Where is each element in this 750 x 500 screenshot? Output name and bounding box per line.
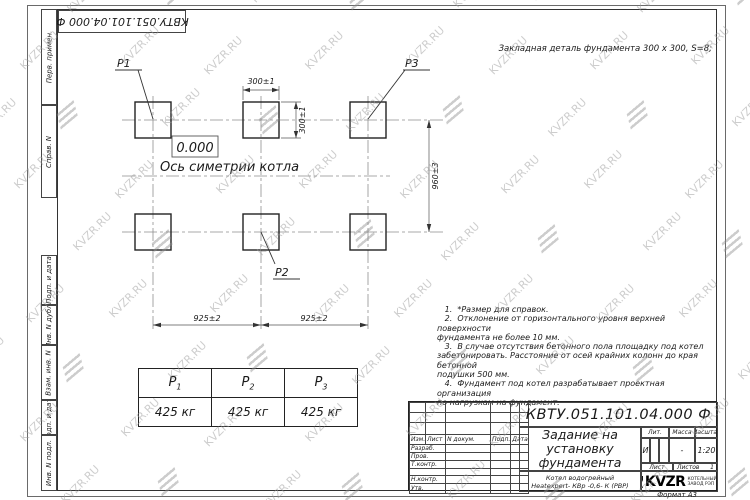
sign-row-prov: Пров.	[410, 453, 446, 461]
mass-header: Масса	[669, 427, 695, 438]
technical-notes: 1. *Размер для справок. 2. Отклонение от…	[437, 305, 715, 407]
kvzr-logo-text: KVZR	[645, 474, 686, 490]
kvzr-stripes-icon	[642, 476, 643, 488]
sheets-cell: Листов 1	[673, 463, 718, 471]
dimension-lines	[153, 86, 429, 325]
pad-label-p3: P3	[405, 57, 419, 70]
margin-label-inv-n-podl: Инв. N подл.	[41, 435, 57, 491]
dim-row-spacing: 960±3	[431, 162, 440, 189]
load-value-p2: 425 кг	[212, 398, 285, 427]
loads-value-row: 425 кг 425 кг 425 кг	[139, 398, 358, 427]
load-header-p1: P1	[139, 369, 212, 398]
margin-label-podp-data-2: Подп. и дата	[41, 400, 57, 435]
watermark-text: KVZR.RU	[736, 339, 750, 383]
margin-label-vzam-inv-n: Взам. инв. N	[41, 345, 57, 400]
dim-top-width: 300±1	[247, 77, 274, 86]
margin-label-inv-n-dubl: Инв. N дубл.	[41, 305, 57, 345]
kvzr-stripes-watermark-icon	[531, 0, 552, 1]
load-header-p3: P3	[285, 369, 358, 398]
sign-row-nkontr: Н.контр.	[410, 476, 446, 484]
loads-table: P1 P2 P3 425 кг 425 кг 425 кг	[138, 368, 358, 427]
loads-header-row: P1 P2 P3	[139, 369, 358, 398]
dim-col-spacing-right: 925±2	[300, 314, 327, 323]
boiler-axis-label: Ось симетрии котла	[160, 160, 299, 175]
load-header-p2: P2	[212, 369, 285, 398]
drawing-sheet: КВТУ.051.101.04.000 Ф Перв. примен. Спра…	[0, 0, 750, 500]
margin-label-podp-data-1: Подп. и дата	[41, 255, 57, 305]
sheet-label: Лист	[641, 463, 673, 471]
lit-cell-2	[650, 438, 659, 463]
load-value-p3: 425 кг	[285, 398, 358, 427]
lit-cell-3	[659, 438, 669, 463]
embedded-detail-note: Закладная деталь фундамента 300 x 300, S…	[490, 44, 712, 54]
dim-col-spacing-left: 925±2	[193, 314, 220, 323]
format-label: Формат А3	[637, 491, 717, 499]
kvzr-stripes-watermark-icon	[733, 0, 750, 6]
rotated-doc-number: КВТУ.051.101.04.000 Ф	[56, 15, 189, 28]
lit-header: Лит.	[641, 427, 669, 438]
load-value-p1: 425 кг	[139, 398, 212, 427]
company-name: КОТЕЛЬНЫЙ ЗАВОД РЭП	[687, 477, 717, 487]
dim-side-height: 300±1	[298, 106, 307, 133]
scale-value: 1:20	[695, 438, 718, 463]
margin-label-sprav-n: Справ. N	[41, 105, 57, 198]
dimension-arrows	[153, 88, 431, 327]
rotated-doc-number-box: КВТУ.051.101.04.000 Ф	[58, 10, 186, 33]
change-table: Изм. Лист N докум. Подп. Дата Разраб. Пр…	[409, 402, 529, 494]
scale-header: Масштаб	[695, 427, 718, 438]
watermark-text: KVZR.RU	[730, 86, 750, 130]
sheets-value: 1	[710, 464, 714, 471]
change-table-header: Изм. Лист N докум. Подп. Дата	[410, 435, 529, 445]
watermark-text: KVZR.RU	[0, 334, 7, 378]
foundation-plan: P1 P3 P2 300±1 300±1 960±3 925±2 925±2 0…	[60, 40, 460, 340]
sign-row-razrab: Разраб.	[410, 445, 446, 453]
drawing-title: Задание на установку фундамента	[519, 427, 641, 471]
sign-row-utv: Утв.	[410, 484, 446, 494]
watermark-text: KVZR.RU	[0, 96, 19, 140]
mass-value: -	[669, 438, 695, 463]
product-name: Котел водогрейный Heatexpert- КВр -0,6- …	[519, 471, 641, 492]
pad-label-p2: P2	[275, 266, 289, 279]
kvzr-stripes-watermark-icon	[727, 465, 748, 496]
margin-label-perv-primen: Перв. примен.	[41, 9, 57, 105]
title-block: Изм. Лист N докум. Подп. Дата Разраб. Пр…	[408, 401, 717, 491]
lit-value: И	[641, 438, 650, 463]
sign-row-tkontr: Т.контр.	[410, 461, 446, 469]
doc-number: КВТУ.051.101.04.000 Ф	[519, 402, 718, 427]
pad-label-p1: P1	[117, 57, 131, 70]
elevation-mark: 0.000	[176, 141, 213, 156]
company-logo-cell: KVZR КОТЕЛЬНЫЙ ЗАВОД РЭП	[641, 471, 718, 492]
